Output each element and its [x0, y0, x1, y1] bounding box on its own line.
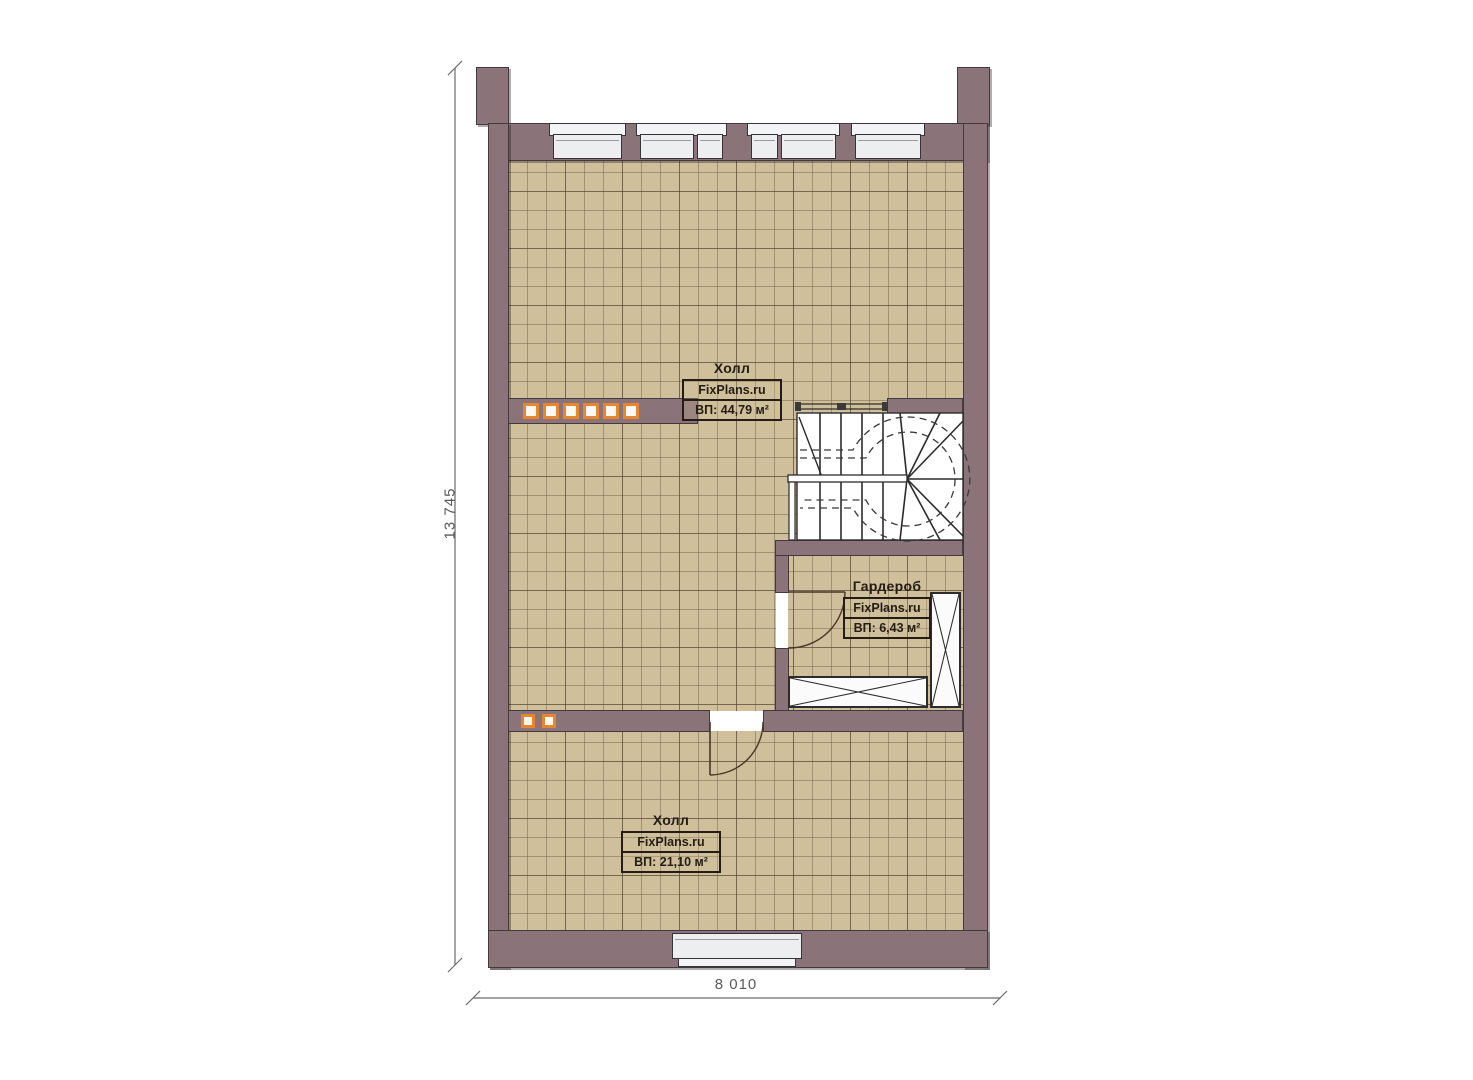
room-area: ВП: 44,79 м²: [684, 399, 780, 419]
x-mark-icon: [932, 594, 959, 706]
floor-plan-page: { "plan": { "dimension_height": "13 745"…: [0, 0, 1473, 1080]
dimension-height: 13 745: [442, 469, 459, 559]
glass-block: [603, 403, 619, 419]
wardrobe-cabinet-wide: [788, 676, 928, 708]
dimension-line-horizontal: [466, 991, 1007, 1005]
wardrobe-cabinet-tall: [930, 592, 961, 708]
room-label-hall-upper: Холл FixPlans.ru ВП: 44,79 м²: [682, 360, 782, 421]
window-top-3: [697, 134, 723, 159]
interior-wall-lower-left: [508, 710, 710, 732]
glass-block: [563, 403, 579, 419]
room-label-wardrobe: Гардероб FixPlans.ru ВП: 6,43 м²: [843, 578, 931, 639]
glass-block: [623, 403, 639, 419]
watermark-text: FixPlans.ru: [845, 599, 929, 617]
wall-left: [488, 123, 509, 968]
interior-wall-under-stairs: [775, 540, 963, 556]
room-name: Холл: [682, 360, 782, 376]
window-top-1: [553, 134, 622, 159]
glass-block: [543, 403, 559, 419]
room-name: Холл: [621, 812, 721, 828]
room-area: ВП: 21,10 м²: [623, 851, 719, 871]
window-top-4: [751, 134, 778, 159]
watermark-text: FixPlans.ru: [684, 381, 780, 399]
room-label-hall-lower: Холл FixPlans.ru ВП: 21,10 м²: [621, 812, 721, 873]
room-name: Гардероб: [843, 578, 931, 594]
x-mark-icon: [790, 678, 926, 706]
interior-wall-lower-right: [763, 710, 963, 732]
wall-stub-top-right: [957, 67, 990, 125]
window-top-2: [640, 134, 694, 159]
window-top-6: [855, 134, 921, 159]
glass-block: [542, 714, 556, 728]
window-sill: [678, 958, 796, 967]
interior-wall-stair-top: [887, 398, 963, 414]
glass-block: [523, 403, 539, 419]
dimension-width: 8 010: [676, 976, 796, 993]
door-opening: [776, 593, 788, 648]
door-opening: [710, 711, 763, 731]
watermark-text: FixPlans.ru: [623, 833, 719, 851]
interior-wall-vertical-lower: [775, 648, 789, 712]
window-bottom: [672, 933, 802, 959]
room-area: ВП: 6,43 м²: [845, 617, 929, 637]
glass-block: [521, 714, 535, 728]
glass-block: [583, 403, 599, 419]
wall-stub-top-left: [476, 67, 509, 125]
wall-right: [963, 123, 988, 968]
window-top-5: [781, 134, 836, 159]
